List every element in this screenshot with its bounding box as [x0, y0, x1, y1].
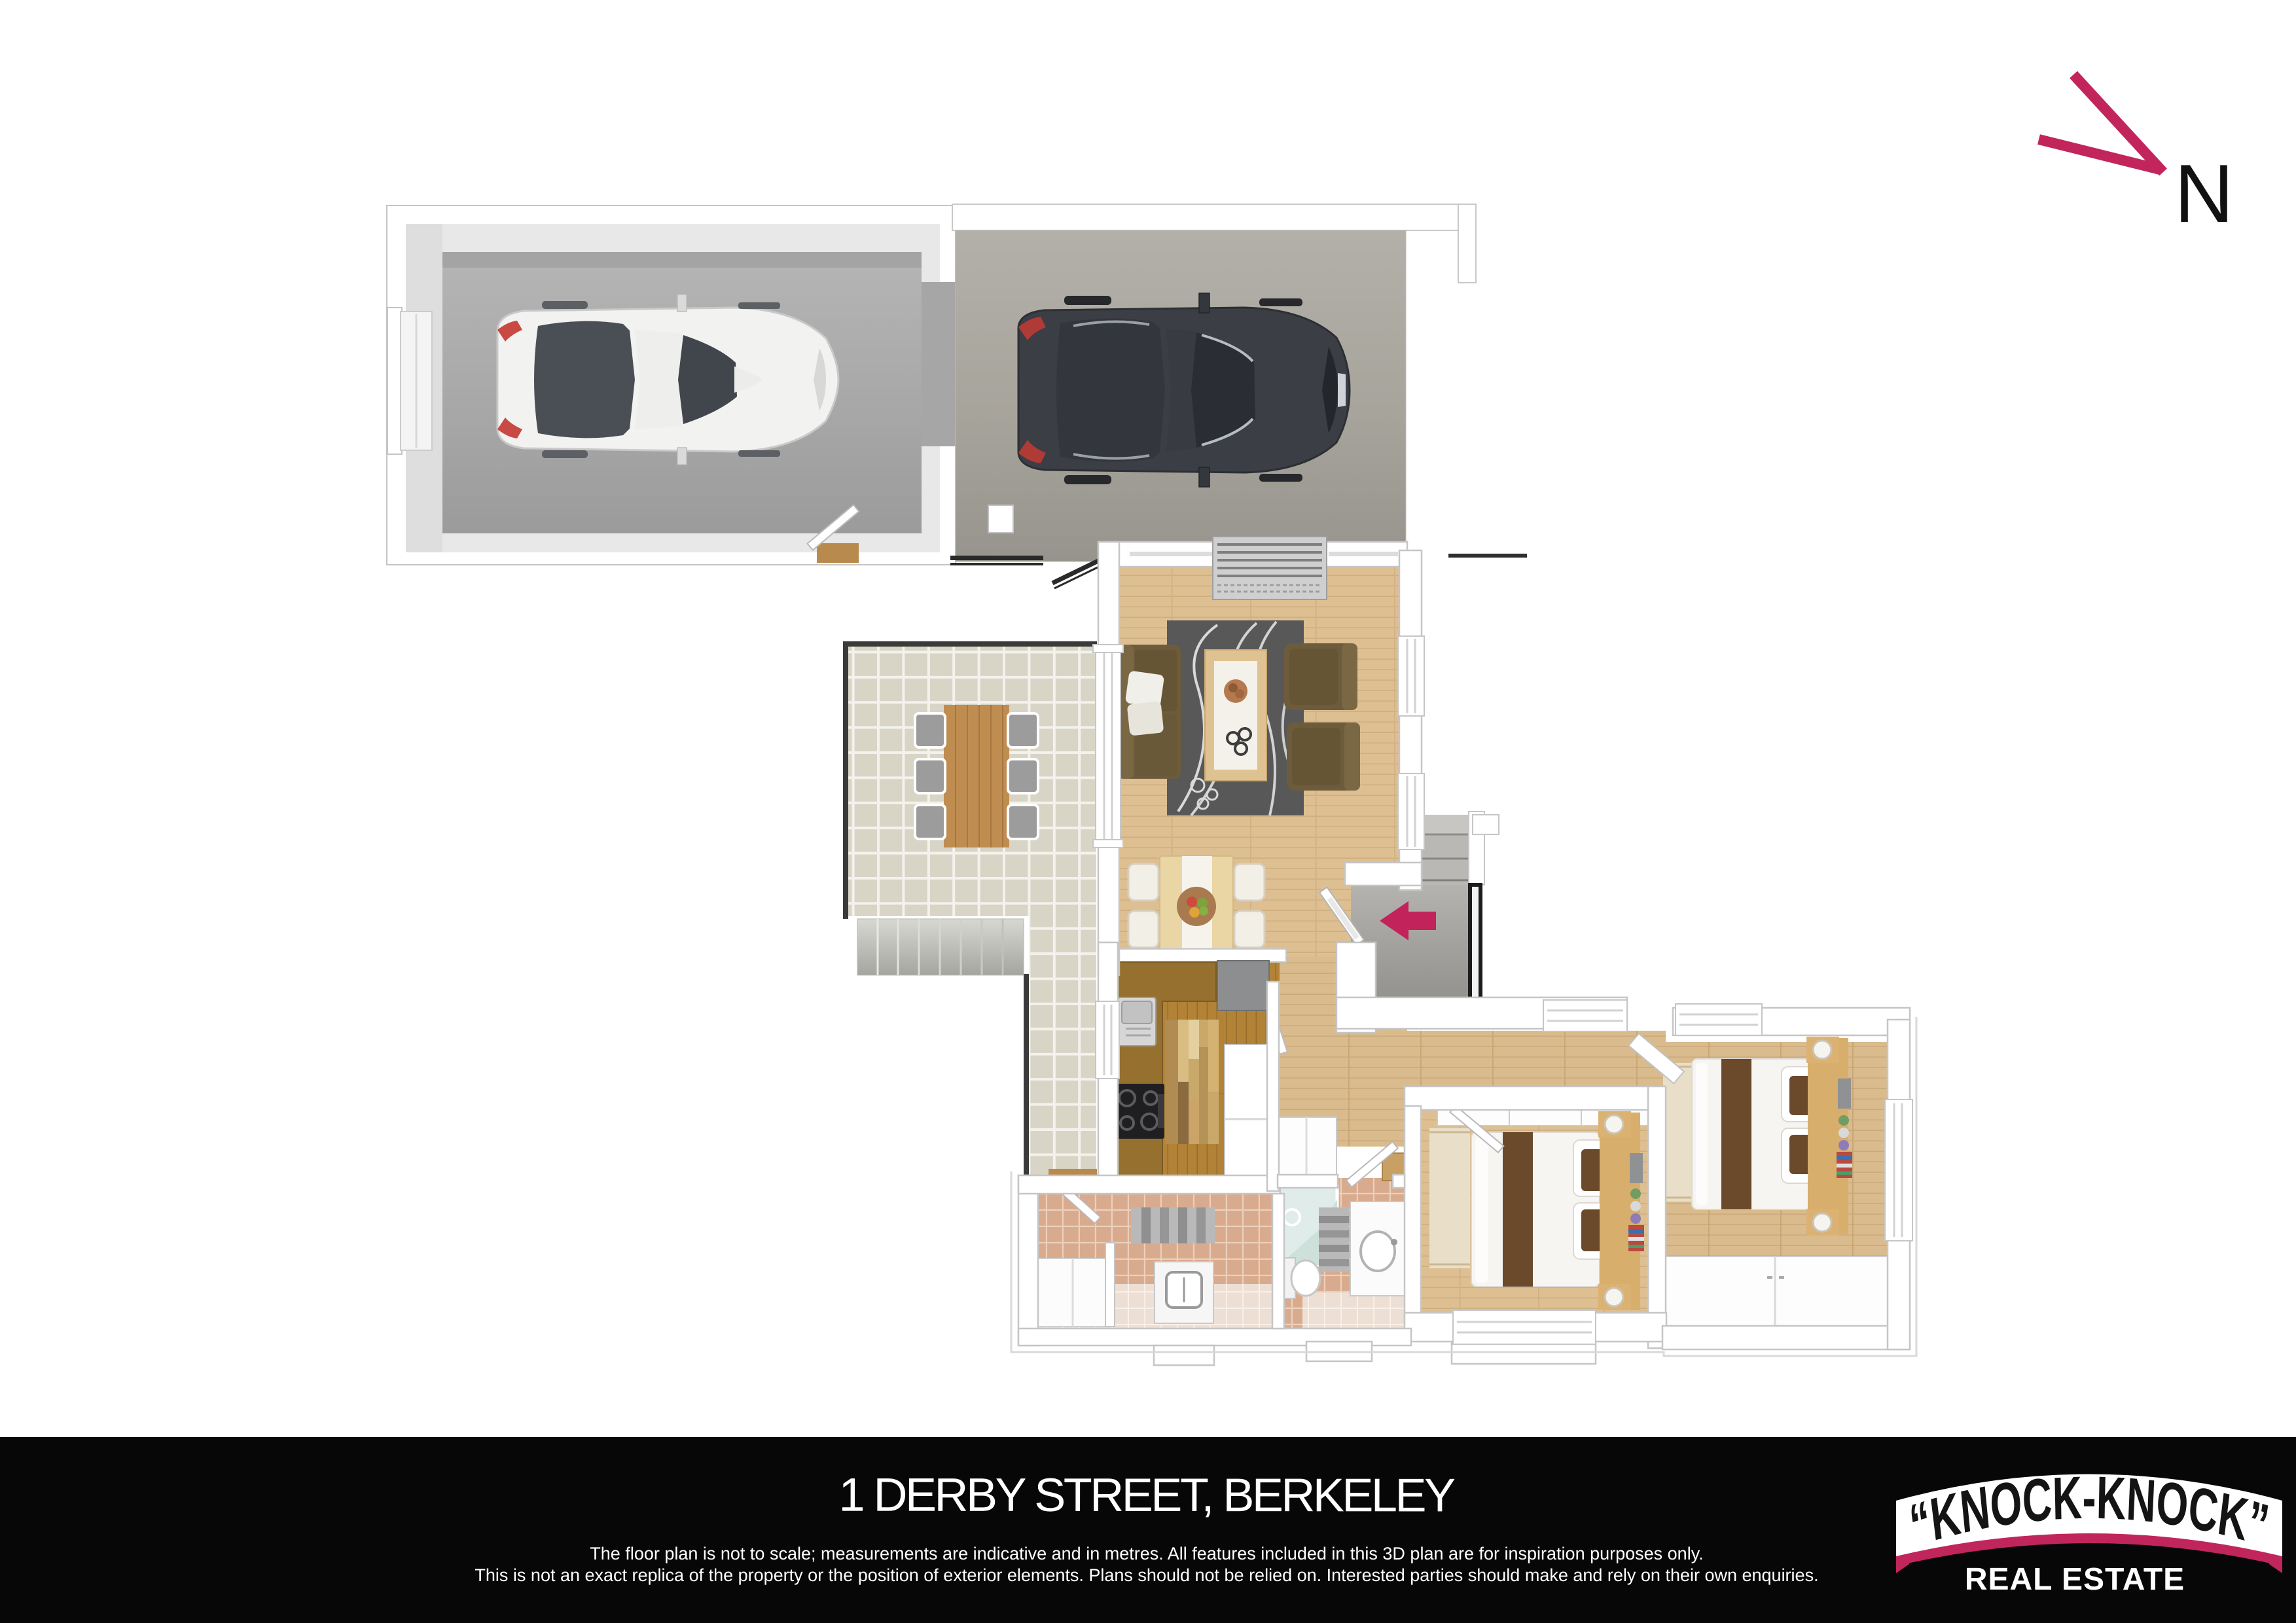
svg-text:This is not an exact replica o: This is not an exact replica of the prop… — [475, 1565, 1818, 1585]
svg-text:1 DERBY STREET, BERKELEY: 1 DERBY STREET, BERKELEY — [838, 1469, 1455, 1522]
svg-text:The floor plan is not to scale: The floor plan is not to scale; measurem… — [590, 1544, 1703, 1563]
svg-text:REAL ESTATE: REAL ESTATE — [1965, 1562, 2185, 1597]
svg-text:N: N — [2174, 147, 2234, 240]
